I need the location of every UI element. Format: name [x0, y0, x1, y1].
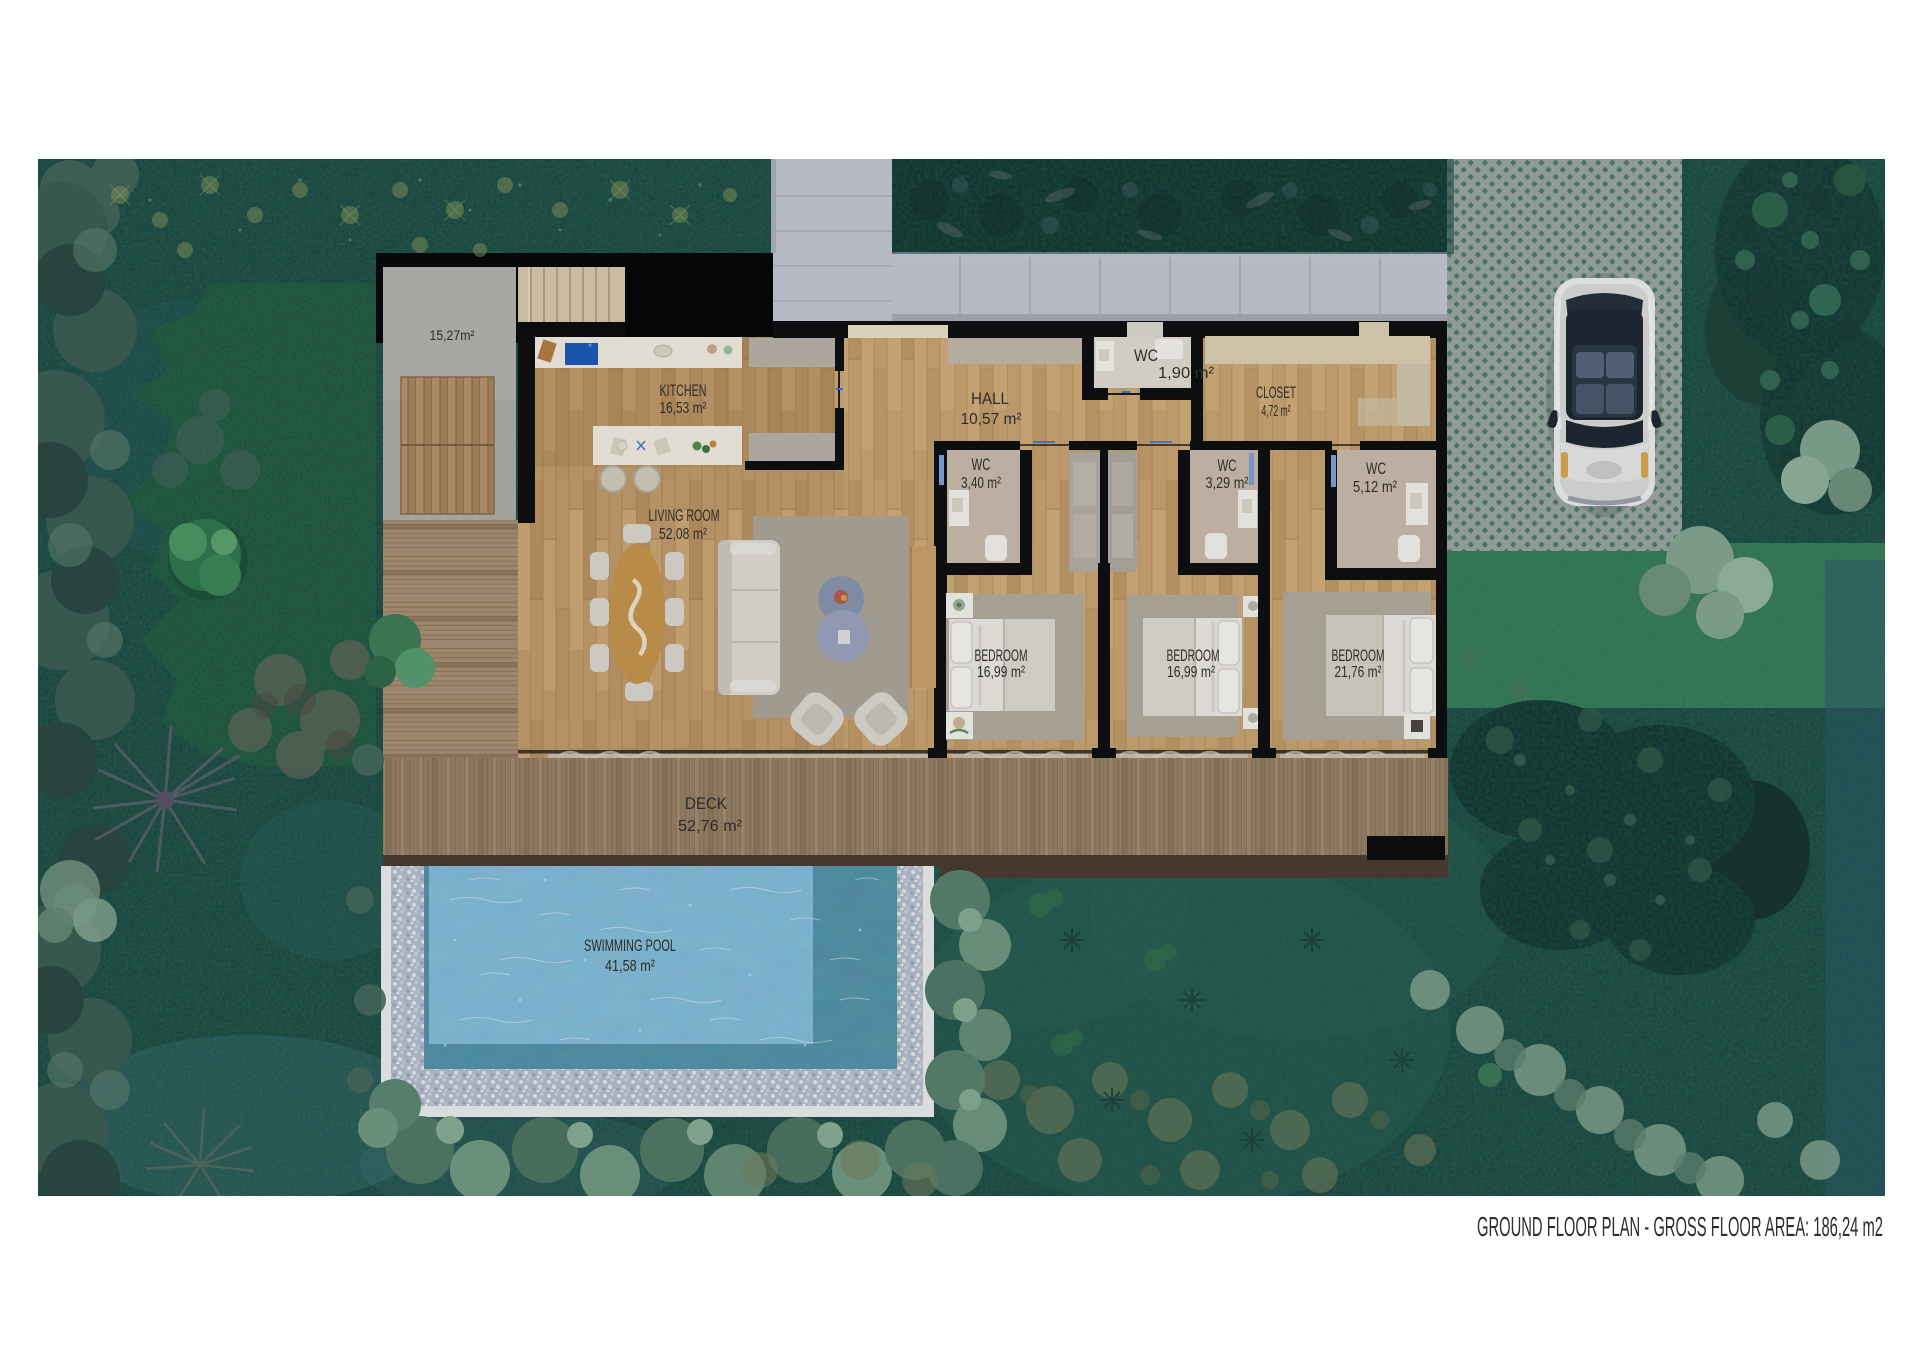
svg-text:KITCHEN: KITCHEN: [660, 381, 707, 400]
svg-text:LIVING ROOM: LIVING ROOM: [649, 506, 720, 525]
svg-text:4,72 m²: 4,72 m²: [1262, 403, 1291, 420]
svg-text:16,99 m²: 16,99 m²: [1167, 664, 1216, 681]
svg-text:BEDROOM: BEDROOM: [1167, 646, 1220, 665]
svg-text:21,76 m²: 21,76 m²: [1335, 664, 1383, 681]
svg-text:BEDROOM: BEDROOM: [975, 646, 1028, 665]
svg-text:BEDROOM: BEDROOM: [1332, 646, 1385, 665]
svg-text:WC: WC: [1366, 459, 1386, 478]
svg-text:15,27m²: 15,27m²: [430, 328, 475, 343]
svg-text:WC: WC: [972, 455, 991, 474]
svg-text:16,99 m²: 16,99 m²: [977, 664, 1026, 681]
svg-text:DECK: DECK: [685, 794, 728, 813]
svg-text:HALL: HALL: [971, 389, 1009, 408]
svg-text:52,08 m²: 52,08 m²: [659, 526, 708, 543]
svg-text:WC: WC: [1134, 346, 1158, 365]
svg-text:CLOSET: CLOSET: [1256, 383, 1296, 402]
svg-text:SWIMMING POOL: SWIMMING POOL: [584, 936, 676, 955]
svg-text:16,53 m²: 16,53 m²: [660, 400, 708, 417]
svg-text:5,12 m²: 5,12 m²: [1353, 479, 1398, 496]
svg-text:3,40 m²: 3,40 m²: [961, 475, 1001, 492]
svg-text:41,58 m²: 41,58 m²: [605, 958, 656, 975]
svg-text:52,76 m²: 52,76 m²: [678, 818, 743, 835]
svg-text:GROUND FLOOR PLAN - GROSS FLOO: GROUND FLOOR PLAN - GROSS FLOOR AREA: 18…: [1477, 1211, 1883, 1242]
svg-text:3,29 m²: 3,29 m²: [1206, 475, 1250, 492]
svg-text:10,57 m²: 10,57 m²: [961, 411, 1023, 428]
svg-text:WC: WC: [1218, 456, 1237, 475]
svg-text:1,90 m²: 1,90 m²: [1158, 365, 1215, 382]
